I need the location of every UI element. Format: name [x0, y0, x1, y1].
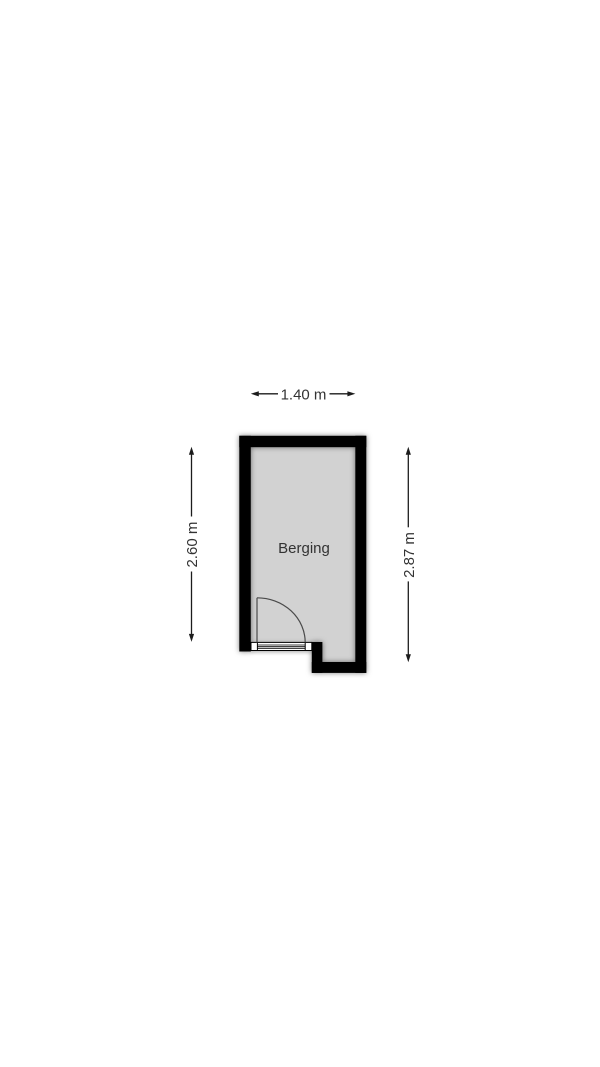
- svg-text:Berging: Berging: [278, 540, 330, 557]
- svg-text:2.60 m: 2.60 m: [184, 522, 201, 568]
- svg-text:2.87 m: 2.87 m: [401, 532, 418, 578]
- svg-text:1.40 m: 1.40 m: [281, 386, 327, 403]
